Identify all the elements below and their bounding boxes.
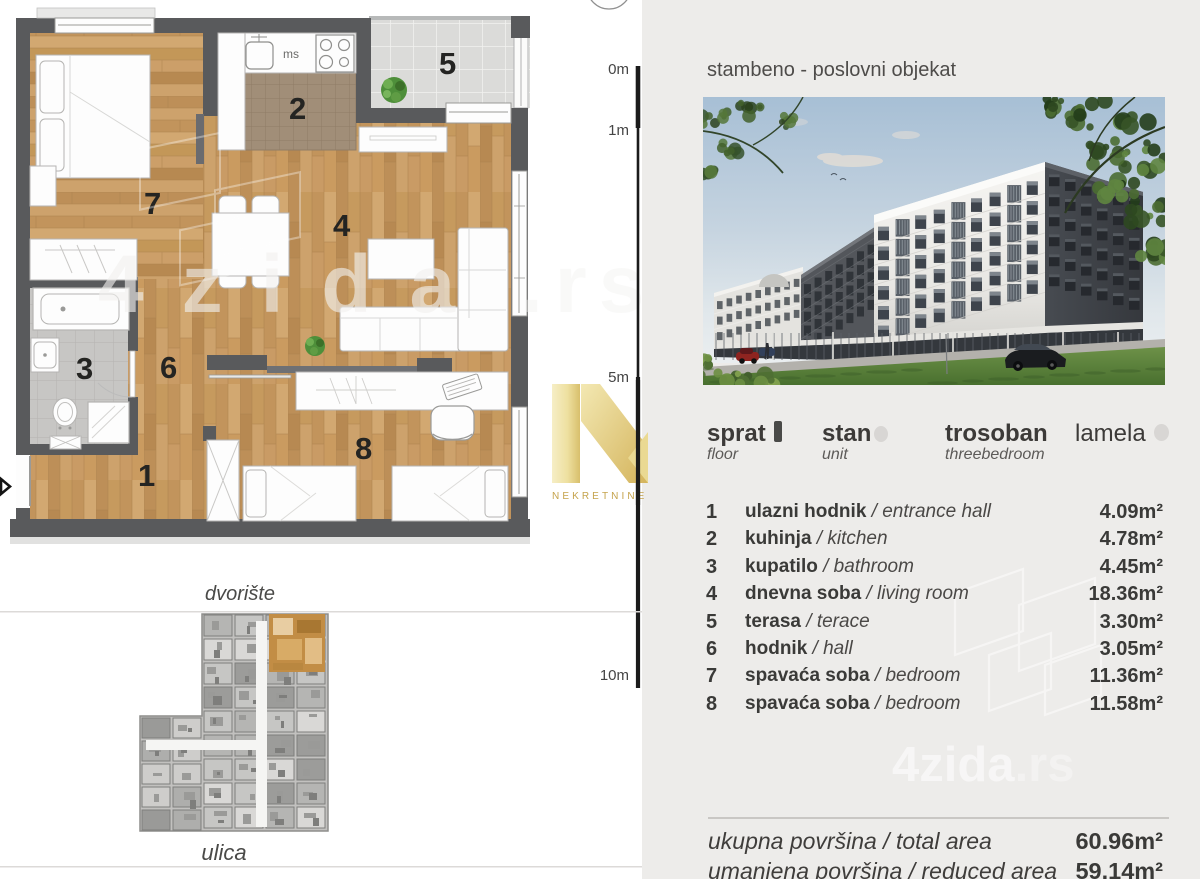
svg-text:10m: 10m <box>600 667 629 684</box>
svg-text:1: 1 <box>138 458 155 493</box>
svg-text:2: 2 <box>289 91 306 126</box>
svg-text:8: 8 <box>355 431 372 466</box>
svg-text:NEKRETNINE: NEKRETNINE <box>552 491 647 502</box>
svg-text:5: 5 <box>439 46 456 81</box>
svg-text:7: 7 <box>144 186 161 221</box>
svg-text:0m: 0m <box>608 61 629 78</box>
svg-text:.rs: .rs <box>520 239 656 330</box>
svg-text:6: 6 <box>160 350 177 385</box>
svg-text:dvorište: dvorište <box>205 583 275 605</box>
svg-text:ulica: ulica <box>201 840 246 865</box>
svg-text:ms: ms <box>283 47 299 61</box>
svg-text:4: 4 <box>333 208 351 243</box>
svg-text:4zida: 4zida <box>98 239 493 330</box>
svg-text:1m: 1m <box>608 122 629 139</box>
svg-text:3: 3 <box>76 351 93 386</box>
